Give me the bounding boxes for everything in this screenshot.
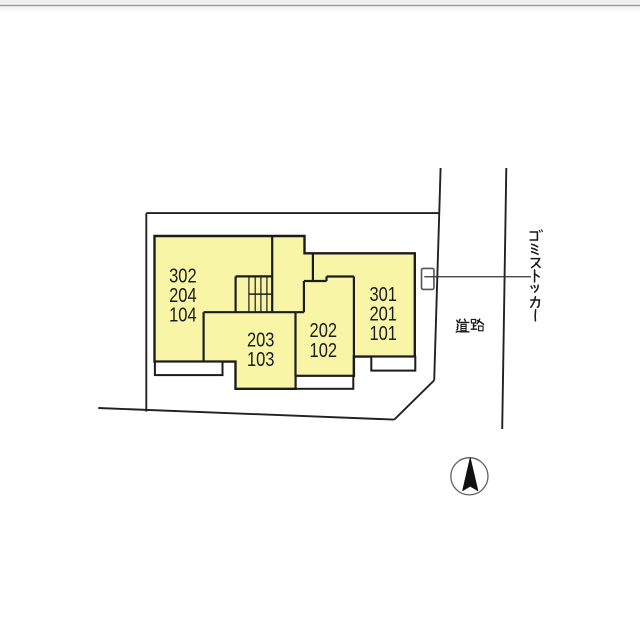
svg-text:101: 101: [369, 323, 397, 345]
svg-text:102: 102: [310, 340, 338, 362]
svg-text:203: 203: [247, 329, 275, 351]
svg-text:202: 202: [310, 320, 338, 342]
svg-text:104: 104: [169, 305, 197, 327]
svg-text:103: 103: [247, 349, 275, 371]
